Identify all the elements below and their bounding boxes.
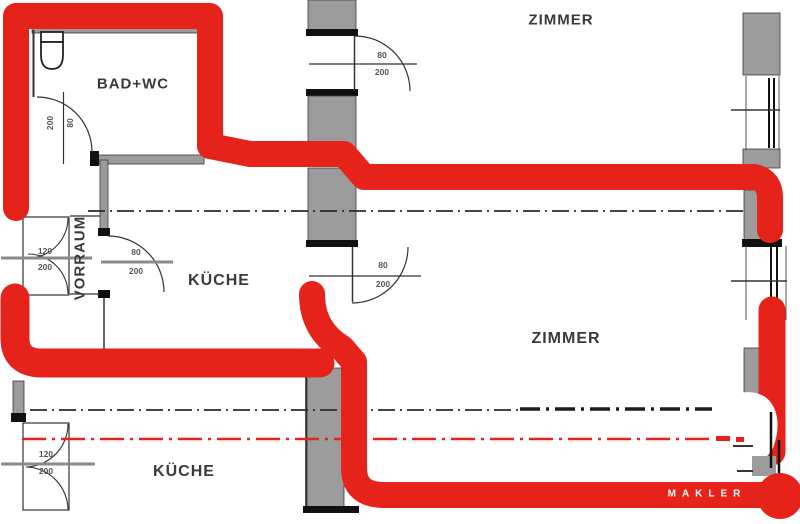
centerline-red-dash <box>716 436 730 441</box>
wall-segment <box>743 13 780 75</box>
wall-jamb <box>90 151 99 166</box>
wall-segment <box>96 155 204 164</box>
door-dim-zimmer-top-width: 80 <box>377 50 386 60</box>
white-smudge <box>712 392 778 464</box>
toilet-bowl <box>41 42 63 69</box>
room-label-kueche-bottom: KÜCHE <box>153 463 215 481</box>
red-marker-top <box>16 16 770 230</box>
wall-jamb <box>98 228 110 236</box>
red-marker-blob <box>757 473 800 519</box>
wall-jamb <box>306 89 358 96</box>
floor-plan: BAD+WC 200 80 VORRAUM 120 200 80 200 KÜC… <box>0 0 800 524</box>
door-dim-kueche-bottom-width: 120 <box>39 449 53 459</box>
room-label-zimmer-right: ZIMMER <box>531 330 600 348</box>
door-dim-badwc-width: 80 <box>65 118 75 127</box>
wall-segment <box>100 160 108 232</box>
door-dim-kueche-bottom-height: 200 <box>39 466 53 476</box>
wall-jamb <box>306 29 358 36</box>
wall-jamb <box>98 290 110 298</box>
room-label-vorraum: VORRAUM <box>72 216 89 301</box>
red-marker-left-bottom <box>15 298 320 363</box>
centerline-red-dash <box>736 437 744 442</box>
centerlines <box>22 211 746 439</box>
door-arc-zimmer-mid <box>352 247 408 303</box>
door-dim-zimmer-mid-height: 200 <box>376 279 390 289</box>
wall-jamb <box>306 240 358 247</box>
door-arc-kueche <box>108 236 164 292</box>
room-label-bad-wc: BAD+WC <box>97 76 169 93</box>
door-dim-entrance-width: 120 <box>38 246 52 256</box>
wall-jamb <box>11 413 26 422</box>
door-dim-badwc-height: 200 <box>45 116 55 130</box>
wall-segment <box>308 0 356 32</box>
door-dim-zimmer-mid-width: 80 <box>378 260 387 270</box>
makler-watermark: MAKLER <box>668 489 747 500</box>
door-dim-kueche-height: 200 <box>129 266 143 276</box>
toilet-tank <box>41 32 63 42</box>
wall-segment <box>752 456 776 476</box>
wall-segment <box>308 96 356 148</box>
toilet-symbol <box>41 32 63 69</box>
room-label-kueche: KÜCHE <box>188 272 250 290</box>
door-dim-zimmer-top-height: 200 <box>375 67 389 77</box>
room-label-zimmer-top: ZIMMER <box>528 12 593 29</box>
door-dim-kueche-width: 80 <box>131 247 140 257</box>
door-dim-entrance-height: 200 <box>38 262 52 272</box>
door-leaf-entrance <box>23 217 69 295</box>
wall-jamb <box>303 506 359 513</box>
red-marker-bottom <box>312 294 786 495</box>
